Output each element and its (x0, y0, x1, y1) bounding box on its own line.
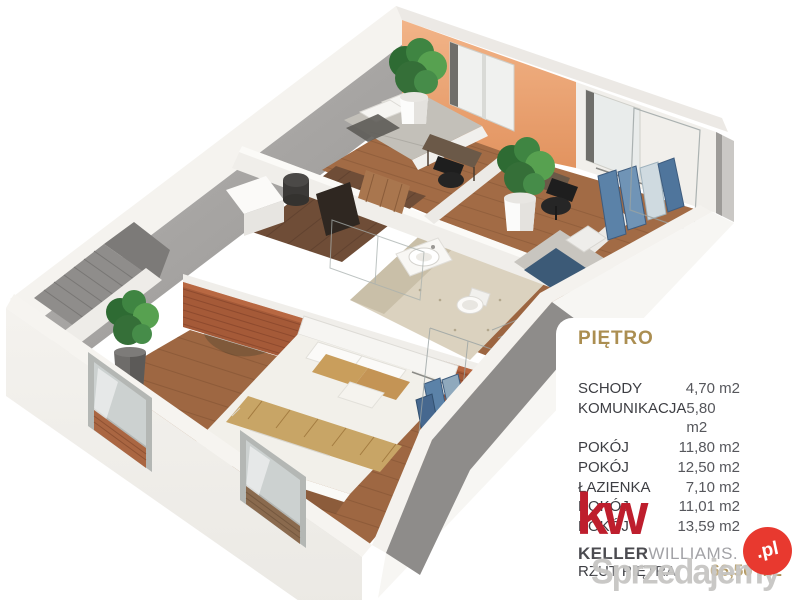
room-label: POKÓJ (578, 438, 629, 458)
room-label: POKÓJ (578, 458, 629, 478)
total-label: RZUT PIĘTRA (578, 563, 676, 580)
room-area: 5,80 m2 (686, 399, 740, 438)
legend-title: PIĘTRO (578, 328, 654, 350)
table-row: KOMUNIKACJA 5,80 m2 (578, 399, 740, 438)
laundry-basket (283, 173, 309, 206)
room-area: 12,50 m2 (677, 458, 740, 478)
table-row: POKÓJ 12,50 m2 (578, 458, 740, 478)
room-area: 11,80 m2 (679, 438, 740, 458)
real-estate-floorplan-image: PIĘTRO SCHODY 4,70 m2 KOMUNIKACJA 5,80 m… (0, 0, 800, 600)
room-area: 13,59 m2 (677, 517, 740, 537)
room-area: 7,10 m2 (686, 478, 740, 498)
room-label: KOMUNIKACJA (578, 399, 686, 419)
total-row: RZUT PIĘTRA 66,50 m2 (578, 561, 782, 581)
table-row: POKÓJ 11,80 m2 (578, 438, 740, 458)
total-value: 66,50 m2 (710, 561, 782, 581)
table-row: SCHODY 4,70 m2 (578, 379, 740, 399)
keller-williams-logo-icon: kw (576, 492, 643, 537)
legend-card: PIĘTRO SCHODY 4,70 m2 KOMUNIKACJA 5,80 m… (556, 318, 800, 600)
room-label: SCHODY (578, 379, 642, 399)
room-area: 4,70 m2 (686, 379, 740, 399)
room-area: 11,01 m2 (679, 497, 740, 517)
